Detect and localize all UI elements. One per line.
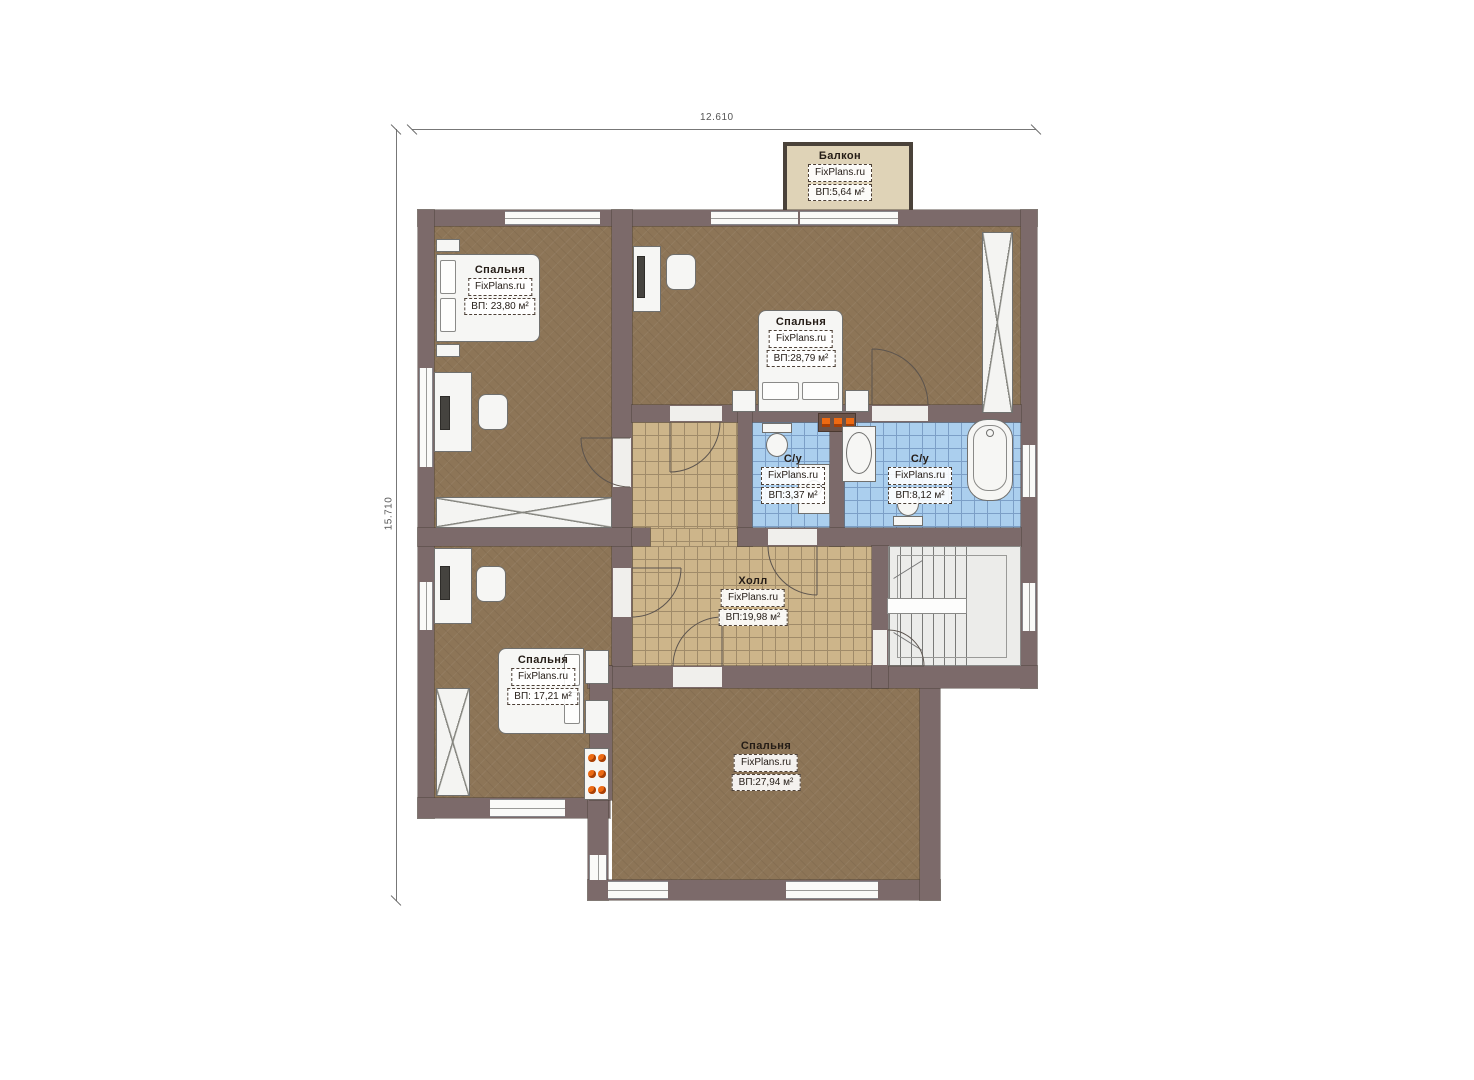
radiator-section — [834, 418, 842, 427]
radiator-section — [822, 418, 830, 427]
door-opening-bathroom-large-ensuite — [872, 406, 928, 421]
wardrobe — [436, 688, 470, 796]
window-left-lower — [419, 582, 433, 630]
window-stairs — [1022, 583, 1036, 631]
room-area: ВП:3,37 м² — [761, 487, 824, 505]
window-left-upper — [419, 368, 433, 467]
room-label-hall: Холл FixPlans.ru ВП:19,98 м² — [719, 575, 788, 626]
dimension-top-label: 12.610 — [700, 112, 734, 123]
room-brand: FixPlans.ru — [721, 589, 785, 607]
window-bathroom-large — [1022, 445, 1036, 497]
wall-hall-bottom — [588, 666, 1037, 688]
pillow — [802, 382, 839, 400]
wall-exterior-bottom-block-right — [920, 682, 940, 900]
desk-chair — [476, 566, 506, 602]
radiator-section — [588, 770, 596, 778]
pillow — [440, 298, 456, 332]
radiator-section — [588, 786, 596, 794]
desk-chair — [666, 254, 696, 290]
wall-hall-stairs-divider — [872, 546, 888, 688]
room-label-bathroom-large: С/у FixPlans.ru ВП:8,12 м² — [888, 453, 952, 504]
room-name: Спальня — [475, 264, 525, 276]
room-name: С/у — [911, 453, 929, 465]
window-bottom-bedroom-2 — [786, 881, 878, 899]
window-bottom-bedroom-side — [589, 855, 607, 880]
window-bottom-bedroom-1 — [608, 881, 668, 899]
nightstand — [732, 390, 756, 412]
door-opening-bedroom-bottom — [673, 667, 722, 687]
nightstand — [436, 239, 460, 252]
room-area: ВП: 23,80 м² — [464, 298, 535, 316]
wardrobe — [982, 232, 1013, 413]
room-area: ВП:27,94 м² — [732, 774, 801, 792]
dimension-left-line — [396, 129, 397, 901]
door-opening-bathroom-small — [768, 529, 817, 545]
radiator-section — [598, 786, 606, 794]
corridor-hall-opening-floor — [650, 528, 738, 546]
radiator-section — [598, 770, 606, 778]
room-name: Холл — [738, 575, 767, 587]
window-top-left-bedroom — [505, 211, 600, 225]
desk-chair — [478, 394, 508, 430]
nightstand — [585, 650, 609, 684]
room-label-bedroom-top-left: Спальня FixPlans.ru ВП: 23,80 м² — [464, 264, 535, 315]
window-top-right-bedroom — [711, 211, 798, 225]
monitor — [440, 566, 450, 600]
toilet-tank — [762, 423, 792, 433]
window-bottom-left-bedroom — [490, 799, 565, 817]
room-brand: FixPlans.ru — [468, 278, 532, 296]
room-brand: FixPlans.ru — [808, 164, 872, 182]
pillow — [762, 382, 799, 400]
door-opening-bedroom-bottom-left — [613, 568, 631, 617]
door-opening-bedroom-top-left — [613, 438, 631, 487]
monitor — [440, 396, 450, 430]
room-brand: FixPlans.ru — [511, 668, 575, 686]
room-label-bedroom-bottom-left: Спальня FixPlans.ru ВП: 17,21 м² — [507, 654, 578, 705]
room-brand: FixPlans.ru — [734, 754, 798, 772]
room-area: ВП:8,12 м² — [888, 487, 951, 505]
bathtub-drain — [986, 429, 994, 437]
room-label-bedroom-top-right: Спальня FixPlans.ru ВП:28,79 м² — [767, 316, 836, 367]
stair-landing-void — [887, 598, 967, 614]
balcony-door — [800, 211, 898, 225]
dimension-top-line — [412, 129, 1036, 130]
room-name: Спальня — [776, 316, 826, 328]
room-label-balcony: Балкон FixPlans.ru ВП:5,64 м² — [808, 150, 872, 201]
nightstand — [436, 344, 460, 357]
room-name: Спальня — [741, 740, 791, 752]
radiator — [584, 748, 609, 800]
nightstand — [845, 390, 869, 412]
wall-corridor-bathroom-divider — [738, 405, 752, 546]
dimension-left-label: 15.710 — [383, 497, 394, 531]
room-area: ВП: 17,21 м² — [507, 688, 578, 706]
room-area: ВП:28,79 м² — [767, 350, 836, 368]
wall-stub-corridor — [632, 528, 650, 546]
wardrobe — [436, 497, 612, 528]
room-brand: FixPlans.ru — [761, 467, 825, 485]
room-name: Балкон — [819, 150, 861, 162]
monitor — [637, 256, 645, 298]
radiator-section — [588, 754, 596, 762]
radiator-section — [598, 754, 606, 762]
door-opening-stairs — [873, 630, 887, 665]
toilet-tank — [893, 516, 923, 526]
wall-exterior-left — [418, 210, 434, 818]
pillow — [440, 260, 456, 294]
room-name: С/у — [784, 453, 802, 465]
wall-bedrooms-left-divider — [418, 528, 632, 546]
staircase — [888, 546, 1021, 666]
room-label-bedroom-bottom: Спальня FixPlans.ru ВП:27,94 м² — [732, 740, 801, 791]
room-brand: FixPlans.ru — [888, 467, 952, 485]
nightstand — [585, 700, 609, 734]
door-opening-bedroom-top-right — [670, 406, 722, 421]
room-area: ВП:19,98 м² — [719, 609, 788, 627]
room-label-bathroom-small: С/у FixPlans.ru ВП:3,37 м² — [761, 453, 825, 504]
room-area: ВП:5,64 м² — [808, 184, 871, 202]
room-brand: FixPlans.ru — [769, 330, 833, 348]
room-name: Спальня — [518, 654, 568, 666]
sink-bowl — [846, 432, 872, 474]
floor-plan-canvas: 12.610 15.710 — [0, 0, 1474, 1080]
